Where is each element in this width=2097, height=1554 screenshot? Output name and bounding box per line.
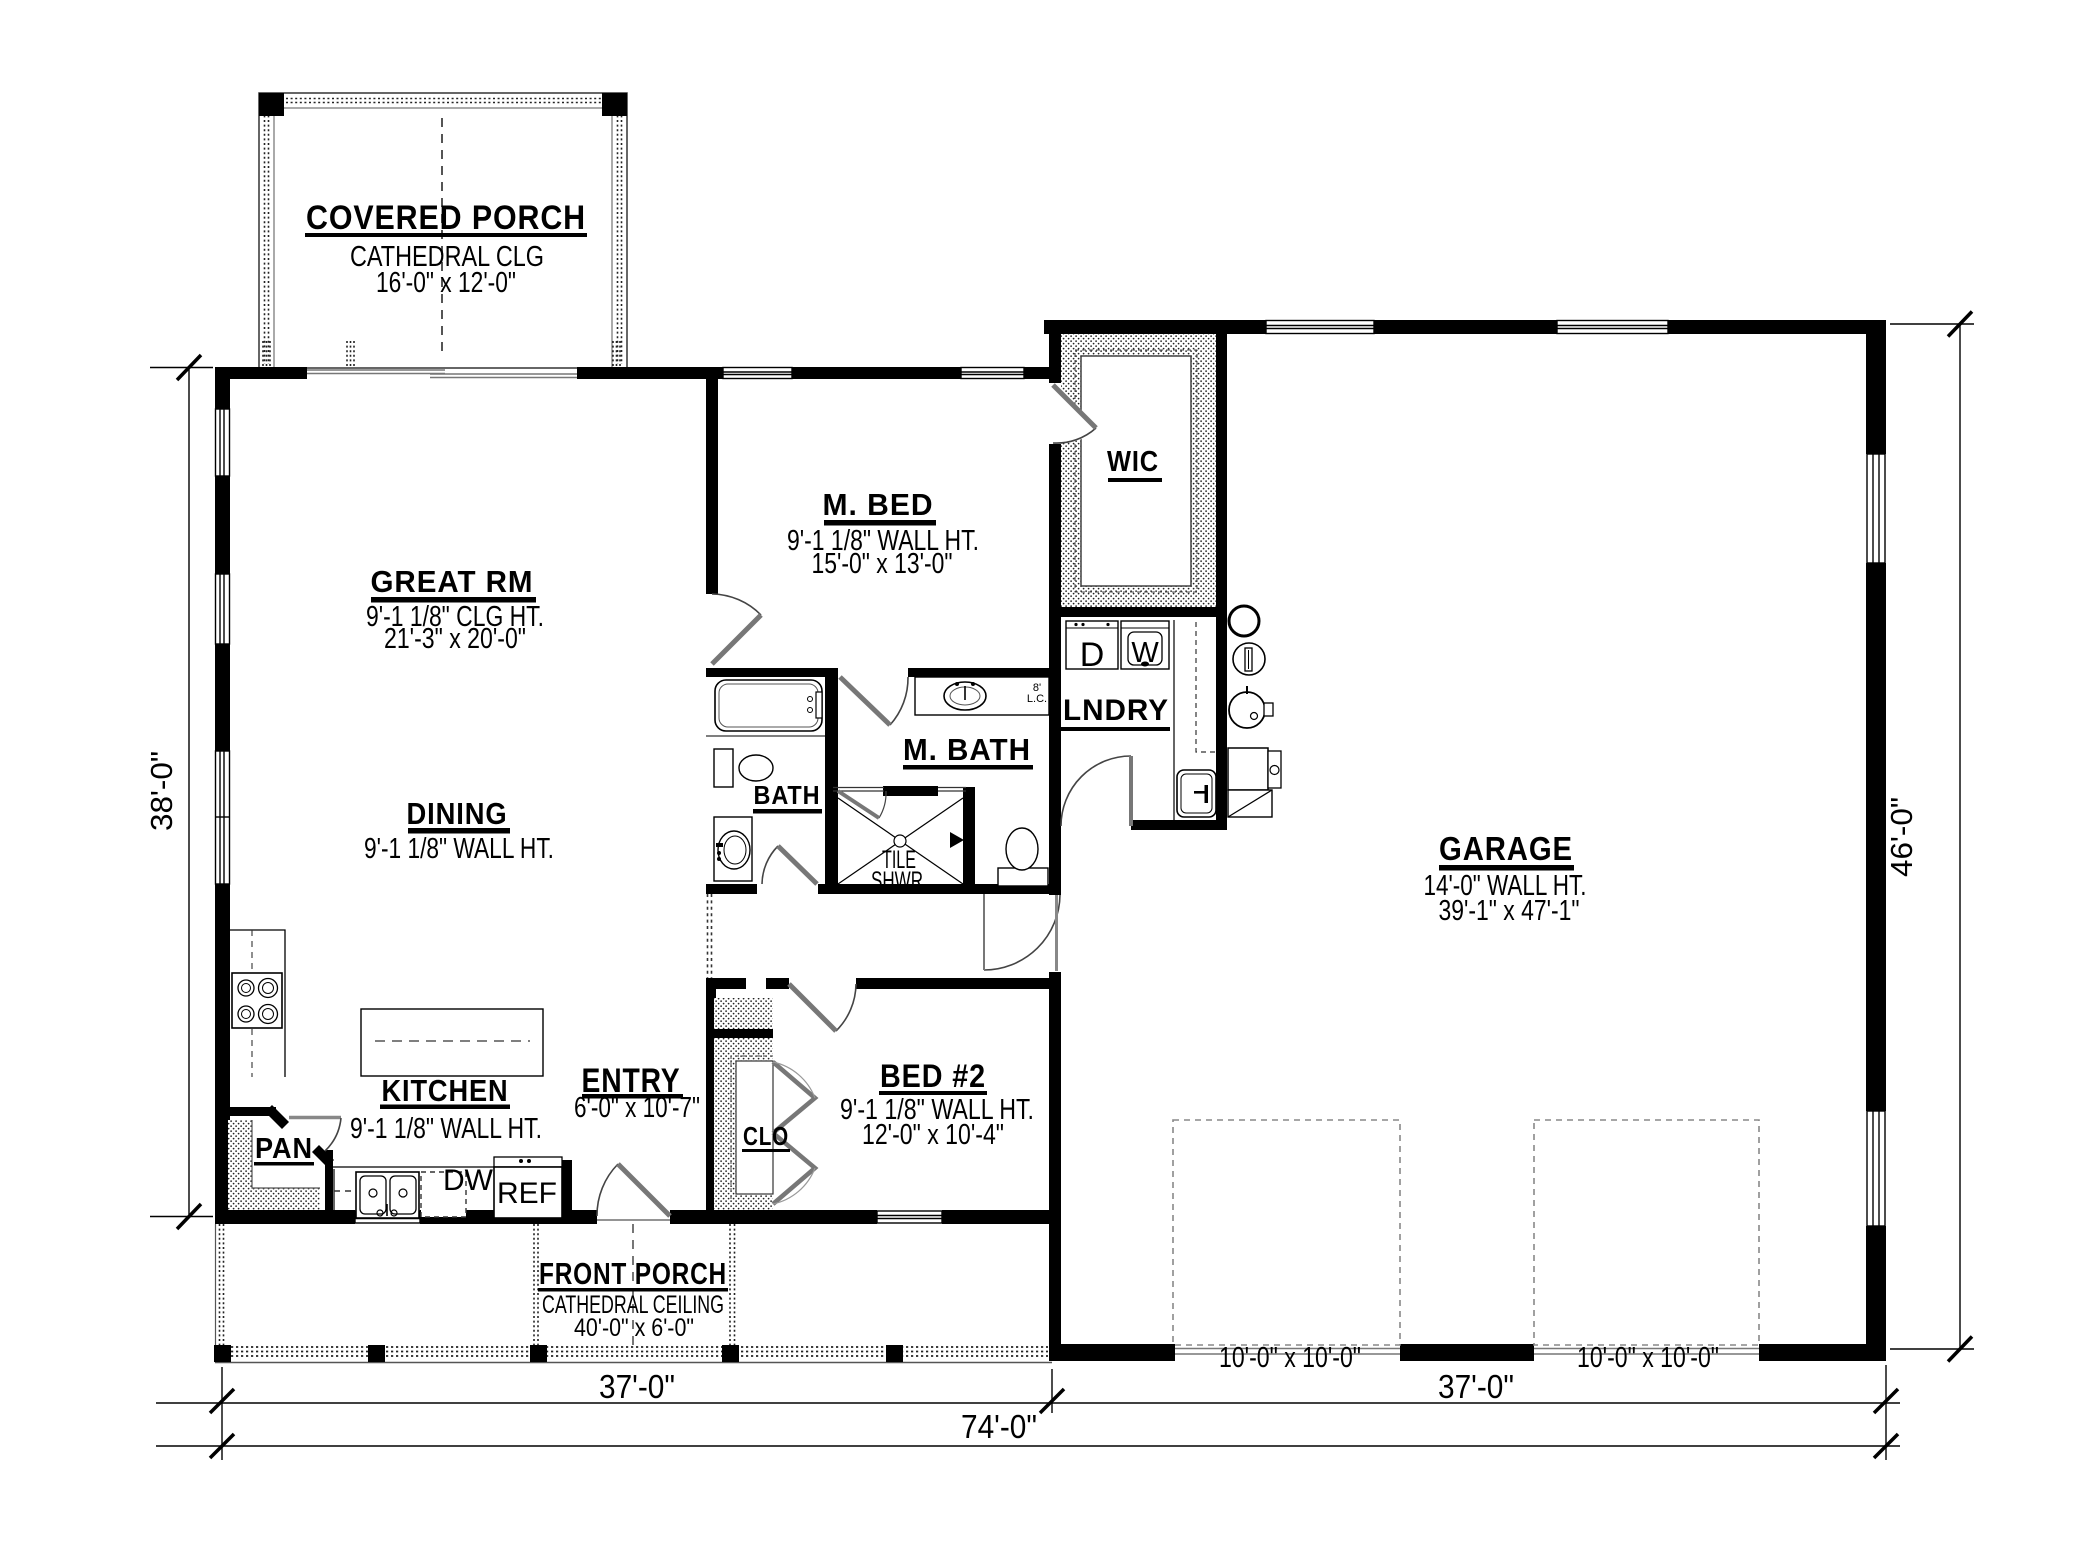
svg-text:10'-0" x 10'-0": 10'-0" x 10'-0" (1219, 1342, 1361, 1374)
svg-text:SHWR: SHWR (871, 867, 923, 895)
svg-text:BATH: BATH (754, 780, 821, 810)
svg-text:46'-0": 46'-0" (1884, 797, 1919, 877)
svg-text:FRONT PORCH: FRONT PORCH (539, 1256, 727, 1291)
svg-text:6'-0" x 10'-7": 6'-0" x 10'-7" (574, 1092, 700, 1124)
svg-text:DINING: DINING (407, 796, 508, 831)
svg-text:WIC: WIC (1107, 446, 1159, 478)
svg-text:9'-1 1/8" WALL HT.: 9'-1 1/8" WALL HT. (364, 833, 554, 865)
svg-text:15'-0" x 13'-0": 15'-0" x 13'-0" (812, 548, 953, 580)
svg-text:9'-1 1/8" WALL HT.: 9'-1 1/8" WALL HT. (350, 1113, 542, 1145)
svg-text:LNDRY: LNDRY (1063, 694, 1169, 727)
svg-text:21'-3" x 20'-0": 21'-3" x 20'-0" (384, 623, 526, 655)
svg-text:37'-0": 37'-0" (1438, 1368, 1514, 1405)
svg-text:COVERED PORCH: COVERED PORCH (306, 199, 586, 237)
svg-text:10'-0" x 10'-0": 10'-0" x 10'-0" (1577, 1342, 1719, 1374)
svg-text:39'-1" x 47'-1": 39'-1" x 47'-1" (1439, 895, 1580, 927)
svg-text:DW: DW (443, 1164, 494, 1197)
svg-text:D: D (1080, 636, 1105, 674)
svg-text:REF: REF (497, 1177, 557, 1210)
svg-text:CLO: CLO (743, 1121, 789, 1151)
svg-text:M. BATH: M. BATH (903, 732, 1031, 767)
svg-text:GARAGE: GARAGE (1439, 830, 1573, 867)
svg-text:16'-0" x 12'-0": 16'-0" x 12'-0" (376, 267, 516, 299)
svg-text:KITCHEN: KITCHEN (382, 1073, 509, 1108)
svg-text:W: W (1131, 637, 1159, 669)
svg-text:PAN: PAN (255, 1133, 313, 1165)
svg-text:L.C.: L.C. (1027, 693, 1047, 705)
svg-text:12'-0" x 10'-4": 12'-0" x 10'-4" (862, 1119, 1004, 1151)
svg-text:37'-0": 37'-0" (599, 1368, 675, 1405)
svg-text:74'-0": 74'-0" (961, 1408, 1037, 1445)
svg-text:BED #2: BED #2 (880, 1058, 986, 1094)
svg-text:M. BED: M. BED (823, 487, 934, 522)
svg-text:38'-0": 38'-0" (144, 751, 179, 831)
svg-text:GREAT RM: GREAT RM (371, 564, 534, 599)
svg-text:40'-0" x 6'-0": 40'-0" x 6'-0" (574, 1314, 694, 1342)
